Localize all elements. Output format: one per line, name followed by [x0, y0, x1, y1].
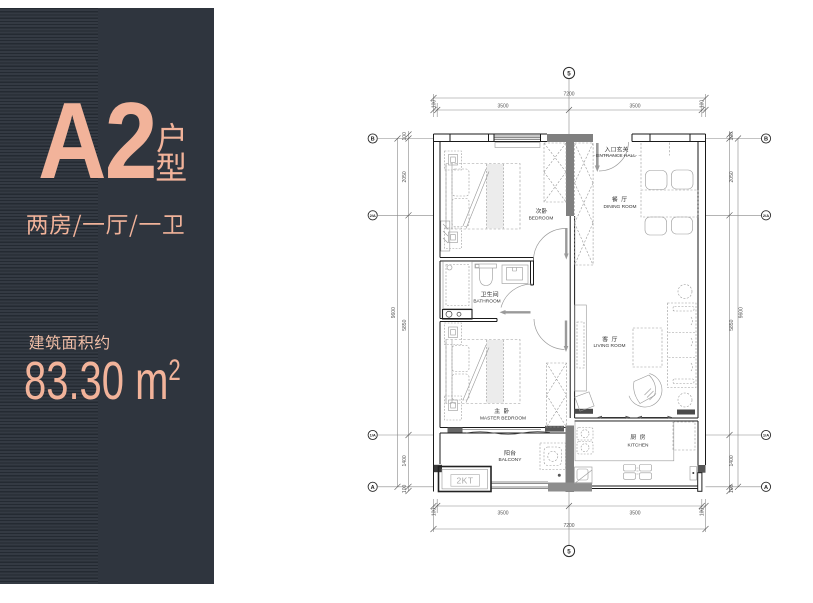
svg-text:2050: 2050 — [402, 171, 408, 182]
svg-text:2/A: 2/A — [763, 213, 769, 218]
svg-text:1/A: 1/A — [763, 433, 769, 438]
svg-text:100: 100 — [700, 508, 706, 517]
svg-text:100: 100 — [402, 132, 408, 141]
svg-text:B: B — [764, 137, 768, 143]
svg-text:7200: 7200 — [563, 523, 574, 529]
svg-text:BEDROOM: BEDROOM — [529, 216, 554, 222]
svg-text:B: B — [371, 137, 375, 143]
svg-text:3500: 3500 — [629, 511, 640, 517]
svg-text:LIVING ROOM: LIVING ROOM — [594, 343, 626, 349]
svg-text:A: A — [764, 485, 768, 491]
svg-text:BALCONY: BALCONY — [499, 457, 523, 463]
svg-text:5: 5 — [567, 548, 571, 555]
svg-text:A: A — [371, 485, 375, 491]
svg-text:MASTER BEDROOM: MASTER BEDROOM — [480, 415, 526, 421]
svg-text:9600: 9600 — [391, 307, 397, 318]
svg-text:100: 100 — [729, 485, 735, 494]
svg-text:9600: 9600 — [739, 307, 745, 318]
svg-text:3500: 3500 — [497, 511, 508, 517]
svg-text:1400: 1400 — [402, 455, 408, 466]
svg-text:5850: 5850 — [402, 319, 408, 330]
svg-text:5850: 5850 — [729, 319, 735, 330]
svg-text:100: 100 — [431, 100, 437, 109]
svg-text:3500: 3500 — [497, 104, 508, 110]
svg-text:100: 100 — [729, 132, 735, 141]
svg-text:7200: 7200 — [563, 92, 574, 98]
svg-text:1/A: 1/A — [370, 433, 376, 438]
svg-text:DINING ROOM: DINING ROOM — [603, 204, 636, 210]
svg-text:2/A: 2/A — [370, 213, 376, 218]
svg-text:BATHROOM: BATHROOM — [473, 299, 500, 305]
svg-text:5: 5 — [567, 70, 571, 77]
svg-text:2KT: 2KT — [456, 476, 473, 486]
svg-text:100: 100 — [700, 100, 706, 109]
svg-text:2050: 2050 — [729, 171, 735, 182]
svg-text:3500: 3500 — [629, 104, 640, 110]
svg-text:ENTRANCE HALL: ENTRANCE HALL — [596, 153, 636, 159]
svg-text:1400: 1400 — [729, 455, 735, 466]
svg-text:100: 100 — [402, 485, 408, 494]
svg-text:KITCHEN: KITCHEN — [627, 442, 649, 448]
svg-text:100: 100 — [431, 508, 437, 517]
